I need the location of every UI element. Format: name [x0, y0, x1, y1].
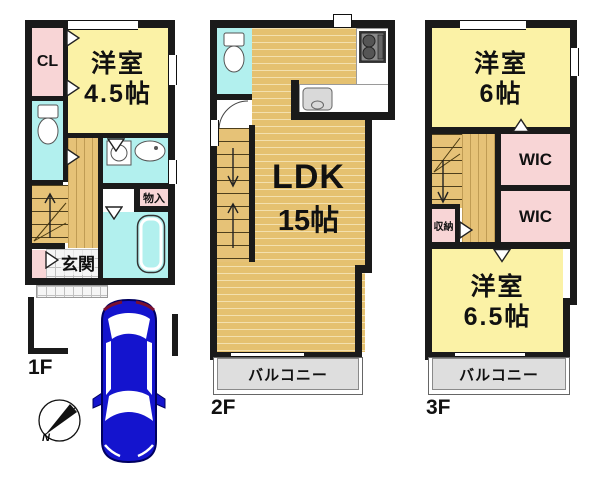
wall — [425, 20, 432, 360]
door-marker — [105, 206, 123, 220]
room-wic-2: WIC — [501, 191, 570, 242]
site-wall — [28, 348, 68, 354]
window — [210, 120, 219, 146]
room-western-6-label: 洋室 6帖 — [432, 40, 570, 118]
door-arc — [218, 100, 252, 130]
wall — [210, 20, 217, 360]
wall — [365, 112, 372, 272]
wall — [501, 185, 570, 191]
door-marker — [107, 138, 125, 152]
stairs-up-arrow-2f — [225, 200, 241, 252]
toilet-icon-1f — [36, 104, 60, 146]
storage-label: 物入 — [143, 190, 165, 206]
wall — [25, 278, 175, 285]
room-storage-monoire: 物入 — [140, 189, 168, 206]
wic1-label: WIC — [519, 150, 552, 170]
site-wall — [28, 297, 34, 354]
door-marker — [459, 221, 473, 239]
wall — [32, 96, 63, 101]
wic2-label: WIC — [519, 207, 552, 227]
floor1-label: 1F — [28, 356, 53, 380]
stairs-down-arrow-2f — [225, 146, 241, 190]
site-wall — [172, 314, 178, 356]
balcony-3f: バルコニー — [428, 357, 570, 395]
window — [570, 48, 579, 76]
wall — [32, 243, 65, 249]
wall — [388, 20, 395, 120]
balcony-2f: バルコニー — [213, 357, 363, 395]
door-marker — [66, 79, 80, 97]
wall — [425, 204, 458, 209]
window — [460, 20, 526, 30]
wall — [291, 80, 299, 120]
room-western-4-5-label: 洋室 4.5帖 — [68, 40, 168, 118]
wall — [217, 94, 252, 100]
toilet-icon-2f — [222, 32, 246, 74]
wall — [563, 298, 570, 360]
bathtub-icon — [136, 214, 166, 274]
stairs-down-arrow-3f — [436, 158, 450, 206]
wall — [32, 180, 63, 185]
wall — [98, 138, 103, 278]
floorplan-canvas: CL 洋室 4.5帖 物入 玄関 — [0, 0, 600, 485]
closet-label: CL — [37, 53, 58, 71]
door-marker — [512, 118, 530, 133]
room-western-6-5-label: 洋室 6.5帖 — [432, 262, 563, 342]
balcony-3f-label: バルコニー — [432, 358, 566, 390]
stove-icon — [359, 31, 386, 63]
shoe-cabinet — [32, 250, 46, 278]
vent-box — [333, 14, 352, 28]
sink-icon-1f — [134, 140, 166, 162]
door-marker — [66, 148, 80, 166]
room-storage-3f: 収納 — [432, 209, 455, 242]
compass-north-label: N — [42, 432, 51, 443]
room-closet-1f: CL — [32, 28, 63, 96]
window — [168, 160, 177, 184]
ldk-label: LDK 15帖 — [252, 152, 365, 244]
wall — [291, 112, 395, 120]
balcony-2f-label: バルコニー — [217, 358, 359, 390]
door-marker — [493, 248, 511, 263]
compass-icon: N — [37, 398, 82, 443]
door-marker — [66, 29, 80, 47]
wall — [25, 20, 32, 285]
floor2-label: 2F — [211, 396, 236, 420]
wall — [355, 265, 362, 360]
wall — [210, 20, 395, 28]
entrance-label: 玄関 — [52, 250, 104, 274]
stairs-up-arrow-1f — [42, 190, 58, 242]
car-icon — [92, 297, 166, 465]
door-marker — [45, 251, 59, 269]
floor3-label: 3F — [426, 396, 451, 420]
wall — [134, 206, 168, 212]
storage-3f-label: 収納 — [434, 218, 454, 233]
room-wic-1: WIC — [501, 134, 570, 185]
window — [168, 55, 177, 85]
kitchen-sink-icon — [302, 87, 333, 111]
wall — [432, 127, 570, 134]
